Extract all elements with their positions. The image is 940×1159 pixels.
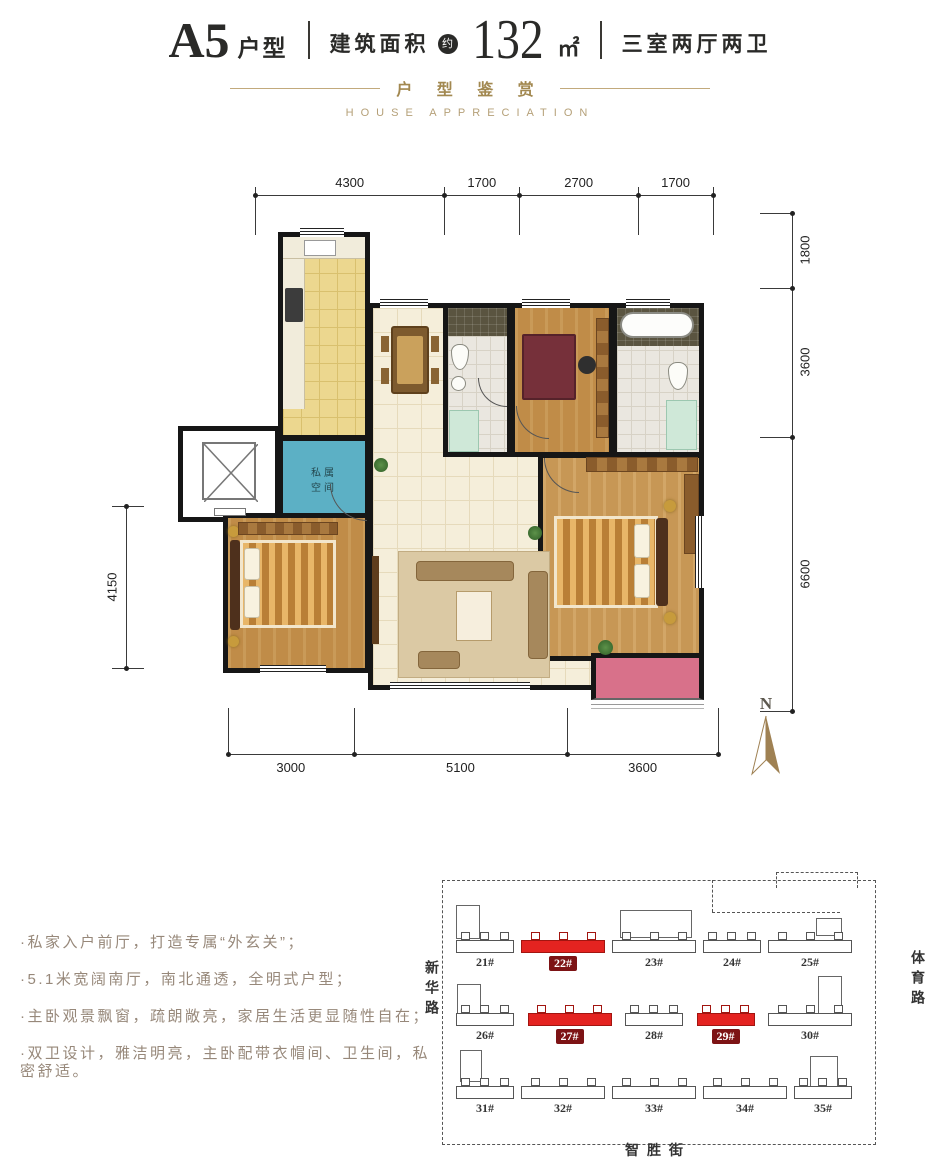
building-base: [768, 940, 852, 953]
building-tower: [769, 1078, 778, 1086]
road-label-east: 体育路: [908, 950, 928, 1010]
building-tower: [537, 1005, 546, 1013]
building-shape: [456, 1078, 514, 1099]
building-shape: [768, 932, 852, 953]
dimension-tick: [760, 437, 794, 438]
building-shape: [697, 1005, 755, 1026]
building-tower: [500, 1078, 509, 1086]
building-badge: 27#: [556, 1029, 584, 1044]
building-base: [456, 1086, 514, 1099]
coffee-table: [456, 591, 492, 641]
bathroom-tile-band: [448, 308, 507, 336]
boundary-segment: [776, 872, 858, 888]
dimension-tick-dot: [790, 211, 795, 216]
elevator-shaft: [202, 442, 256, 500]
lamp-icon: [664, 612, 676, 624]
dimension-label: 1800: [798, 236, 813, 265]
building-tower: [461, 1078, 470, 1086]
building-label: 25#: [801, 955, 819, 970]
building-row: 31#32#33#34#35#: [456, 1078, 852, 1116]
dimension-label: 1700: [467, 175, 496, 190]
bookshelf: [596, 318, 609, 438]
dining-table-top: [397, 336, 423, 384]
section-subtitle: 户 型 鉴 赏 HOUSE APPRECIATION: [0, 76, 940, 119]
dimension-tick-dot: [442, 193, 447, 198]
subtitle-rule-right: [560, 88, 710, 89]
building-tower: [669, 1005, 678, 1013]
kitchen-counter-side: [283, 259, 305, 409]
dimension-tick-dot: [352, 752, 357, 757]
plant-icon: [598, 640, 613, 655]
building-shape: [521, 932, 605, 953]
headboard: [230, 540, 240, 630]
sofa: [416, 561, 514, 581]
sofa-side: [528, 571, 548, 659]
building-tower: [806, 1005, 815, 1013]
building-base: [612, 1086, 696, 1099]
building-26: 26#: [456, 1005, 514, 1043]
building-shape: [612, 1078, 696, 1099]
subtitle-rule-left: [230, 88, 380, 89]
building-tower: [741, 1078, 750, 1086]
building-tower: [650, 1078, 659, 1086]
building-shape: [703, 1078, 787, 1099]
building-label: 31#: [476, 1101, 494, 1116]
building-row: 26#27#28#29#30#: [456, 1005, 852, 1044]
building-label: 34#: [736, 1101, 754, 1116]
wardrobe: [238, 522, 338, 535]
building-27: 27#: [528, 1005, 612, 1044]
building-tower: [649, 1005, 658, 1013]
building-shape: [794, 1078, 852, 1099]
dimension-tick: [228, 708, 229, 756]
boundary-segment: [712, 912, 840, 913]
building-22: 22#: [521, 932, 605, 971]
north-label: N: [746, 694, 786, 714]
wardrobe: [586, 457, 698, 472]
dimension-tick: [760, 288, 794, 289]
feature-item: ·主卧观景飘窗，疏朗敞亮，家居生活更显随性自在；: [20, 1008, 440, 1026]
window: [522, 299, 570, 308]
room-layout: 三室两厅两卫: [622, 28, 772, 58]
building-tower: [559, 932, 568, 940]
building-tower: [678, 932, 687, 940]
building-base: [612, 940, 696, 953]
building-shape: [521, 1078, 605, 1099]
dimension-tick-dot: [253, 193, 258, 198]
building-tower: [630, 1005, 639, 1013]
pillow: [634, 564, 650, 598]
building-31: 31#: [456, 1078, 514, 1116]
bathtub-icon: [620, 312, 694, 338]
window: [626, 299, 670, 308]
site-map: 21#22#23#24#25# 26#27#28#29#30# 31#32#33…: [420, 872, 932, 1159]
building-32: 32#: [521, 1078, 605, 1116]
building-tower: [834, 932, 843, 940]
lamp-icon: [228, 636, 239, 647]
building-base: [697, 1013, 755, 1026]
building-23: 23#: [612, 932, 696, 970]
building-24: 24#: [703, 932, 761, 970]
building-33: 33#: [612, 1078, 696, 1116]
pillow: [244, 548, 260, 580]
feature-item: ·私家入户前厅，打造专属“外玄关”；: [20, 934, 440, 952]
chair: [431, 336, 439, 352]
building-badge: 22#: [549, 956, 577, 971]
building-21: 21#: [456, 932, 514, 970]
kitchen-sink: [304, 240, 336, 256]
elevator-door: [214, 508, 246, 516]
shower-area: [666, 400, 697, 450]
dimension-tick-dot: [711, 193, 716, 198]
dimension-tick: [112, 506, 144, 507]
building-tower: [708, 932, 717, 940]
building-base: [703, 940, 761, 953]
dimension-label: 6600: [798, 560, 813, 589]
building-label: 33#: [645, 1101, 663, 1116]
pillow: [244, 586, 260, 618]
approx-badge: 约: [438, 34, 458, 54]
building-tower: [480, 932, 489, 940]
building-tower: [593, 1005, 602, 1013]
building-tower: [650, 932, 659, 940]
foyer-label-line1: 私属: [290, 466, 358, 481]
dimension-tick: [718, 708, 719, 756]
building-label: 35#: [814, 1101, 832, 1116]
dimension-line: [126, 506, 127, 668]
unit-code: A5: [168, 15, 229, 65]
building-tower: [531, 1078, 540, 1086]
building-tower: [721, 1005, 730, 1013]
building-tower: [818, 1078, 827, 1086]
building-tower: [727, 932, 736, 940]
dimension-tick-dot: [790, 435, 795, 440]
building-base: [456, 940, 514, 953]
building-shape: [456, 1005, 514, 1026]
unit-suffix: 户型: [238, 29, 288, 63]
building-tower: [747, 932, 756, 940]
dimension-chain-left: 4150: [100, 506, 144, 668]
stove-icon: [285, 288, 303, 322]
building-tower: [806, 932, 815, 940]
building-shape: [528, 1005, 612, 1026]
dimension-label: 4300: [335, 175, 364, 190]
armchair: [418, 651, 460, 669]
dimension-chain-top: 4300170027001700: [255, 175, 713, 235]
title-divider: [600, 21, 602, 59]
plant-icon: [528, 526, 542, 540]
dimension-line: [228, 754, 718, 755]
building-25: 25#: [768, 932, 852, 970]
chair: [431, 368, 439, 384]
building-base: [528, 1013, 612, 1026]
building-35: 35#: [794, 1078, 852, 1116]
dimension-label: 1700: [661, 175, 690, 190]
floor-plan: 私属 空间: [178, 228, 742, 702]
area-value: 132: [472, 12, 543, 68]
building-base: [521, 1086, 605, 1099]
building-tower: [778, 1005, 787, 1013]
area-unit: ㎡: [558, 31, 580, 63]
boundary-segment: [712, 880, 713, 912]
balcony: [591, 653, 704, 700]
building-label: 32#: [554, 1101, 572, 1116]
compass-needle-icon: [749, 714, 783, 778]
dimension-chain-right: 180036006600: [778, 213, 822, 711]
building-29: 29#: [697, 1005, 755, 1044]
dimension-label: 3600: [628, 760, 657, 775]
window: [390, 682, 530, 691]
building-tower: [838, 1078, 847, 1086]
building-row: 21#22#23#24#25#: [456, 932, 852, 971]
chair: [381, 336, 389, 352]
building-tower: [480, 1078, 489, 1086]
shower-area: [449, 410, 479, 452]
dimension-line: [792, 213, 793, 711]
building-base: [456, 1013, 514, 1026]
building-label: 26#: [476, 1028, 494, 1043]
road-label-south: 智胜街: [442, 1140, 874, 1159]
building-tower: [622, 1078, 631, 1086]
building-base: [703, 1086, 787, 1099]
dimension-tick-dot: [124, 666, 129, 671]
building-tower: [461, 1005, 470, 1013]
building-tower: [713, 1078, 722, 1086]
sink-icon: [451, 376, 466, 391]
tv-cabinet: [372, 556, 379, 644]
lamp-icon: [664, 500, 676, 512]
building-shape: [612, 932, 696, 953]
brochure-page: A5 户型 建筑面积 约 132 ㎡ 三室两厅两卫 户 型 鉴 赏 HOUSE …: [0, 0, 940, 1159]
building-label: 23#: [645, 955, 663, 970]
dimension-chain-bottom: 300051003600: [228, 738, 718, 782]
feature-list: ·私家入户前厅，打造专属“外玄关”； ·5.1米宽阔南厅，南北通透，全明式户型；…: [20, 934, 440, 1100]
building-tower: [702, 1005, 711, 1013]
building-tower: [500, 932, 509, 940]
road-label-west: 新华路: [422, 960, 442, 1020]
building-tower: [500, 1005, 509, 1013]
feature-item: ·5.1米宽阔南厅，南北通透，全明式户型；: [20, 971, 440, 989]
building-tower: [834, 1005, 843, 1013]
page-title: A5 户型 建筑面积 约 132 ㎡ 三室两厅两卫: [0, 12, 940, 68]
dimension-tick: [760, 213, 794, 214]
building-tower: [559, 1078, 568, 1086]
building-base: [521, 940, 605, 953]
building-tower: [531, 932, 540, 940]
dimension-tick: [112, 668, 144, 669]
dimension-tick-dot: [565, 752, 570, 757]
area-label: 建筑面积: [330, 28, 430, 58]
dimension-label: 5100: [446, 760, 475, 775]
building-tower: [622, 932, 631, 940]
building-base: [625, 1013, 683, 1026]
building-tower: [778, 932, 787, 940]
building-28: 28#: [625, 1005, 683, 1043]
subtitle-en: HOUSE APPRECIATION: [0, 107, 940, 119]
building-label: 21#: [476, 955, 494, 970]
building-tower: [565, 1005, 574, 1013]
headboard: [656, 518, 668, 606]
window: [300, 228, 344, 237]
window: [380, 299, 428, 308]
dimension-label: 4150: [105, 573, 120, 602]
building-label: 30#: [801, 1028, 819, 1043]
building-tower: [480, 1005, 489, 1013]
plant-icon: [374, 458, 388, 472]
dimension-tick-dot: [790, 709, 795, 714]
dimension-tick: [567, 708, 568, 756]
chair: [381, 368, 389, 384]
building-tower: [587, 932, 596, 940]
dimension-label: 3000: [276, 760, 305, 775]
desk: [522, 334, 576, 400]
building-label: 24#: [723, 955, 741, 970]
building-tower: [799, 1078, 808, 1086]
north-arrow: N: [746, 694, 786, 783]
building-tower: [461, 932, 470, 940]
feature-item: ·双卫设计，雅洁明亮，主卧配带衣帽间、卫生间，私密舒适。: [20, 1045, 440, 1081]
building-label: 28#: [645, 1028, 663, 1043]
dimension-tick: [354, 708, 355, 756]
dimension-tick-dot: [226, 752, 231, 757]
building-badge: 29#: [712, 1029, 740, 1044]
desk-chair: [578, 356, 596, 374]
building-shape: [768, 1005, 852, 1026]
window: [260, 665, 326, 674]
building-base: [768, 1013, 852, 1026]
dimension-label: 2700: [564, 175, 593, 190]
building-tower: [740, 1005, 749, 1013]
dimension-tick-dot: [636, 193, 641, 198]
dimension-label: 3600: [798, 348, 813, 377]
building-shape: [703, 932, 761, 953]
pillow: [634, 524, 650, 558]
dimension-tick-dot: [124, 504, 129, 509]
title-divider: [308, 21, 310, 59]
dimension-line: [255, 195, 713, 196]
building-shape: [456, 932, 514, 953]
window: [695, 516, 704, 588]
building-tower: [587, 1078, 596, 1086]
dimension-tick-dot: [790, 286, 795, 291]
building-base: [794, 1086, 852, 1099]
building-34: 34#: [703, 1078, 787, 1116]
subtitle-cn: 户 型 鉴 赏: [396, 76, 543, 100]
dimension-tick-dot: [716, 752, 721, 757]
building-30: 30#: [768, 1005, 852, 1043]
building-tower: [678, 1078, 687, 1086]
elevator-x-icon: [204, 444, 258, 502]
building-shape: [625, 1005, 683, 1026]
dimension-tick-dot: [517, 193, 522, 198]
